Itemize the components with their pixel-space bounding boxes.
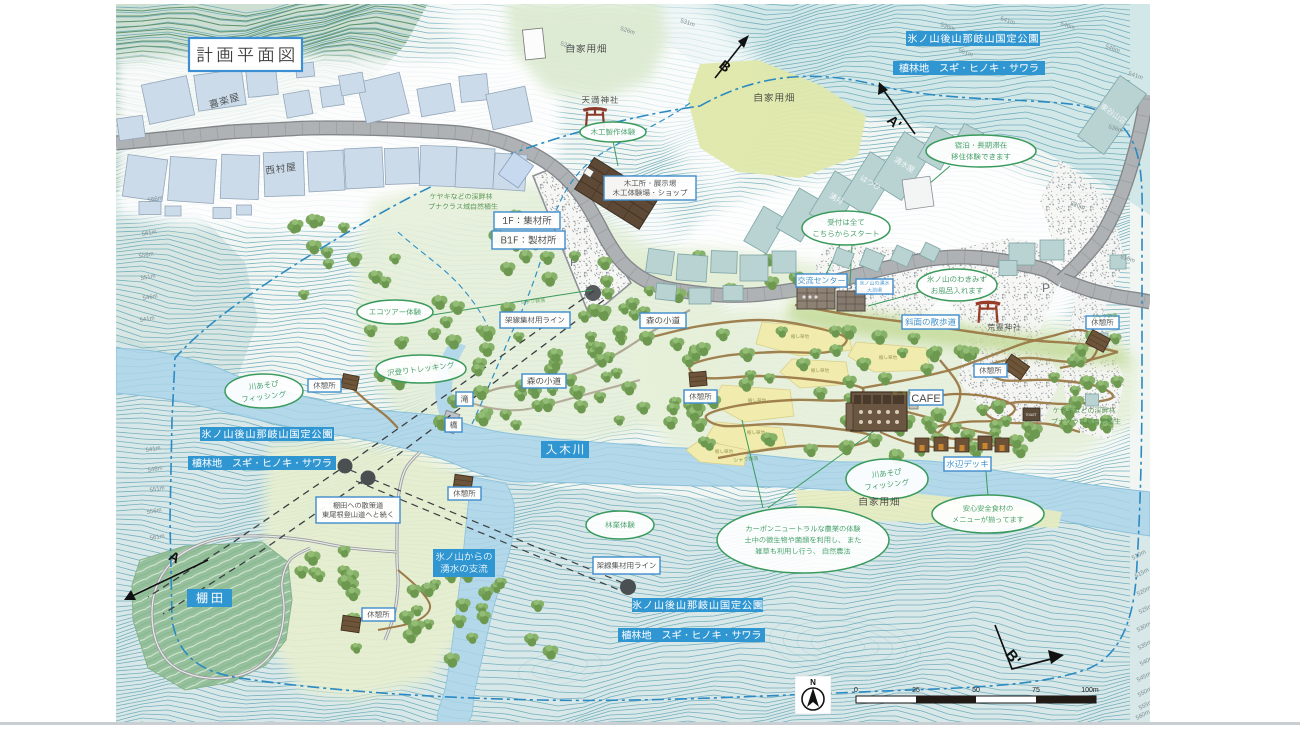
svg-text:50: 50 (972, 687, 980, 694)
svg-text:TOILET: TOILET (1025, 413, 1036, 417)
svg-text:100m: 100m (1081, 687, 1099, 694)
svg-text:N: N (810, 678, 816, 687)
svg-text:CAFE: CAFE (911, 393, 940, 405)
svg-text:25: 25 (912, 687, 920, 694)
svg-text:P: P (1042, 281, 1050, 295)
svg-text:75: 75 (1032, 687, 1040, 694)
svg-text:0: 0 (854, 687, 858, 694)
